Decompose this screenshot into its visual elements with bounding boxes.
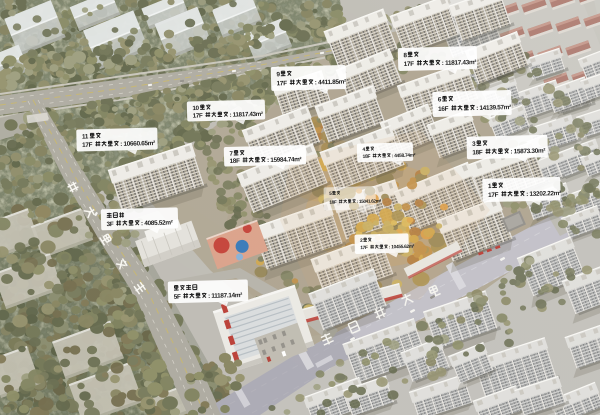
svg-text:17F: 17F [488, 192, 499, 199]
svg-text:17F: 17F [404, 61, 415, 68]
svg-text:18F: 18F [472, 149, 483, 156]
svg-text:: 15041.62m²: : 15041.62m² [357, 198, 382, 204]
svg-text:18F: 18F [363, 154, 371, 160]
svg-text:5F: 5F [174, 294, 181, 301]
svg-text:: 15984.74m²: : 15984.74m² [267, 156, 302, 164]
svg-text:17F: 17F [277, 80, 288, 87]
svg-text:: 15873.30m²: : 15873.30m² [510, 148, 545, 156]
svg-text:17F: 17F [82, 142, 93, 149]
svg-text:: 10660.65m²: : 10660.65m² [120, 140, 155, 148]
svg-text:17F: 17F [193, 112, 203, 119]
svg-text:: 11817.43m²: : 11817.43m² [229, 111, 263, 119]
svg-text:16F: 16F [438, 106, 449, 113]
svg-text:: 13202.22m²: : 13202.22m² [526, 190, 561, 198]
svg-text:: 4458.74m²: : 4458.74m² [392, 153, 416, 160]
svg-text:18F: 18F [230, 158, 241, 165]
svg-text:: 11817.43m²: : 11817.43m² [442, 59, 477, 67]
svg-text:11: 11 [82, 133, 89, 140]
svg-text:17F: 17F [360, 245, 368, 251]
svg-text:: 11187.14m²: : 11187.14m² [208, 292, 242, 300]
svg-text:3F: 3F [107, 221, 114, 228]
svg-text:: 4411.85m²: : 4411.85m² [315, 79, 347, 87]
svg-text:: 4085.52m²: : 4085.52m² [141, 219, 173, 227]
svg-text:18F: 18F [329, 200, 337, 205]
svg-text:: 10455.62m²: : 10455.62m² [389, 244, 415, 251]
svg-text:: 14139.57m²: : 14139.57m² [476, 104, 511, 112]
svg-text:10: 10 [192, 105, 199, 112]
